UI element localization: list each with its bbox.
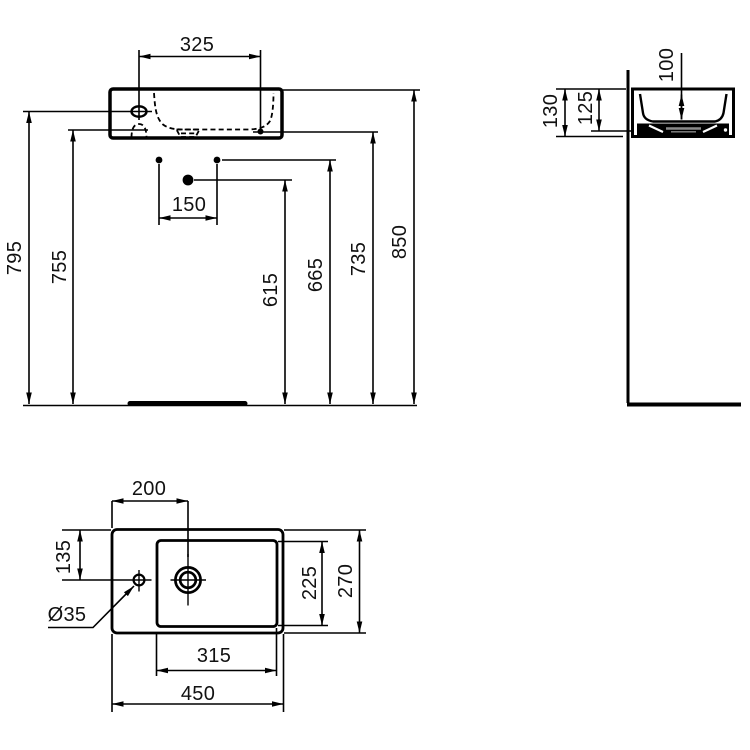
dim-label-bowl-depth: 100 [657,48,677,82]
bowl-section [640,94,727,122]
dim-label-overflow-height: 735 [349,242,369,276]
dim-label-tap-hole-height: 795 [5,241,25,275]
drain-hole-plan [171,554,207,606]
dim-label-bowl-width: 315 [197,646,231,666]
dim-label-fixing-spacing: 150 [172,195,206,215]
plan-view [48,501,366,712]
dim-label-total-depth: 130 [541,94,561,128]
dim-label-tap-from-left: 200 [132,479,166,499]
technical-drawing-canvas: 325 150 795 755 615 665 735 850 130 125 … [0,0,750,750]
dim-label-tap-from-back: 135 [54,540,74,574]
dim-label-underside-height: 755 [50,250,70,284]
dim-label-bowl-front-to-back: 225 [300,566,320,600]
dim-label-tap-hole-span: 325 [180,35,214,55]
hidden-bowl-outline [132,93,274,138]
dim-label-overall-front-to-back: 270 [336,564,356,598]
drawing-linework [0,0,750,750]
dim-label-fixing-height: 665 [306,258,326,292]
front-view [23,50,420,406]
dim-label-trap-height: 615 [261,273,281,307]
dim-label-tap-hole-diameter: Ø35 [48,605,87,625]
dim-label-overall-width: 450 [181,684,215,704]
dim-label-mounting-depth: 125 [576,91,596,125]
dim-label-overall-height: 850 [390,225,410,259]
